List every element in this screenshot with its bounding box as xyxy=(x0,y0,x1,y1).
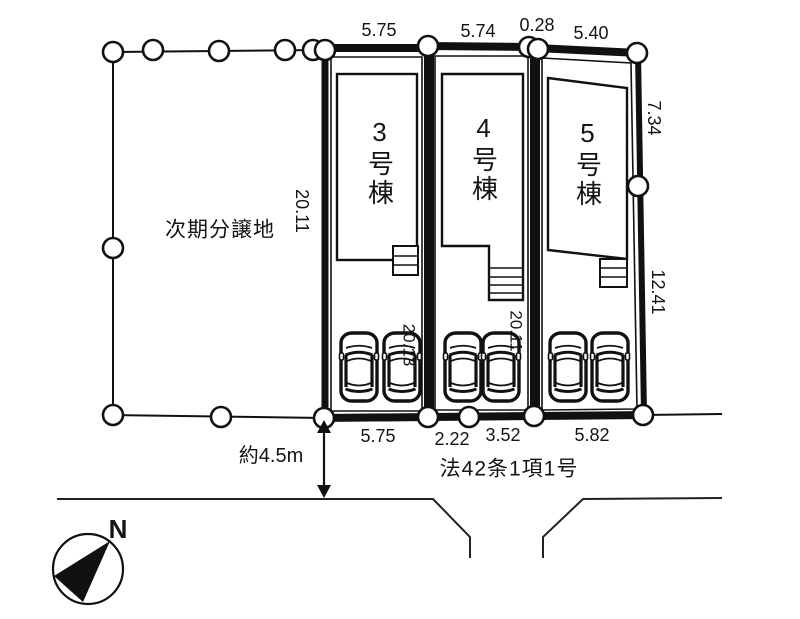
dim-top-jog: 0.28 xyxy=(519,16,554,34)
dim-bottom-lot4-left: 2.22 xyxy=(434,430,469,448)
dim-bottom-lot3: 5.75 xyxy=(360,427,395,445)
building-5-entry-steps xyxy=(600,259,627,287)
parking-cars xyxy=(340,333,630,401)
building-3-label: 3号棟 xyxy=(362,117,399,208)
dim-top-lot4: 5.74 xyxy=(460,22,495,40)
road-width-label: 約4.5m xyxy=(239,446,303,466)
next-phase-area-label: 次期分譲地 xyxy=(165,220,275,241)
building-4-label: 4号棟 xyxy=(466,113,503,204)
dim-inner-lot3: 20.13 xyxy=(401,324,418,367)
dim-left-lot3: 20.11 xyxy=(293,189,311,233)
dim-top-lot3: 5.75 xyxy=(361,21,396,39)
north-label: N xyxy=(109,516,128,542)
road-width-arrow xyxy=(317,420,331,498)
building-3-entry-steps xyxy=(393,246,418,275)
car-icon xyxy=(444,333,483,401)
dim-inner-lot4: 20.11 xyxy=(508,310,525,351)
dim-bottom-lot5: 5.82 xyxy=(574,426,609,444)
building-5-label: 5号棟 xyxy=(570,118,607,209)
car-icon xyxy=(549,333,588,401)
dim-right-upper: 7.34 xyxy=(645,100,663,135)
dim-bottom-lot4-right: 3.52 xyxy=(485,426,520,444)
north-compass-icon xyxy=(53,534,123,604)
car-icon xyxy=(591,333,630,401)
car-icon xyxy=(340,333,379,401)
road-type-label: 法42条1項1号 xyxy=(440,459,579,480)
dim-right-lower: 12.41 xyxy=(649,269,667,314)
dim-top-lot5: 5.40 xyxy=(573,24,608,42)
road-edge-lines xyxy=(57,498,722,558)
site-plan: 5.75 5.74 0.28 5.40 7.34 12.41 20.11 20.… xyxy=(0,0,800,619)
